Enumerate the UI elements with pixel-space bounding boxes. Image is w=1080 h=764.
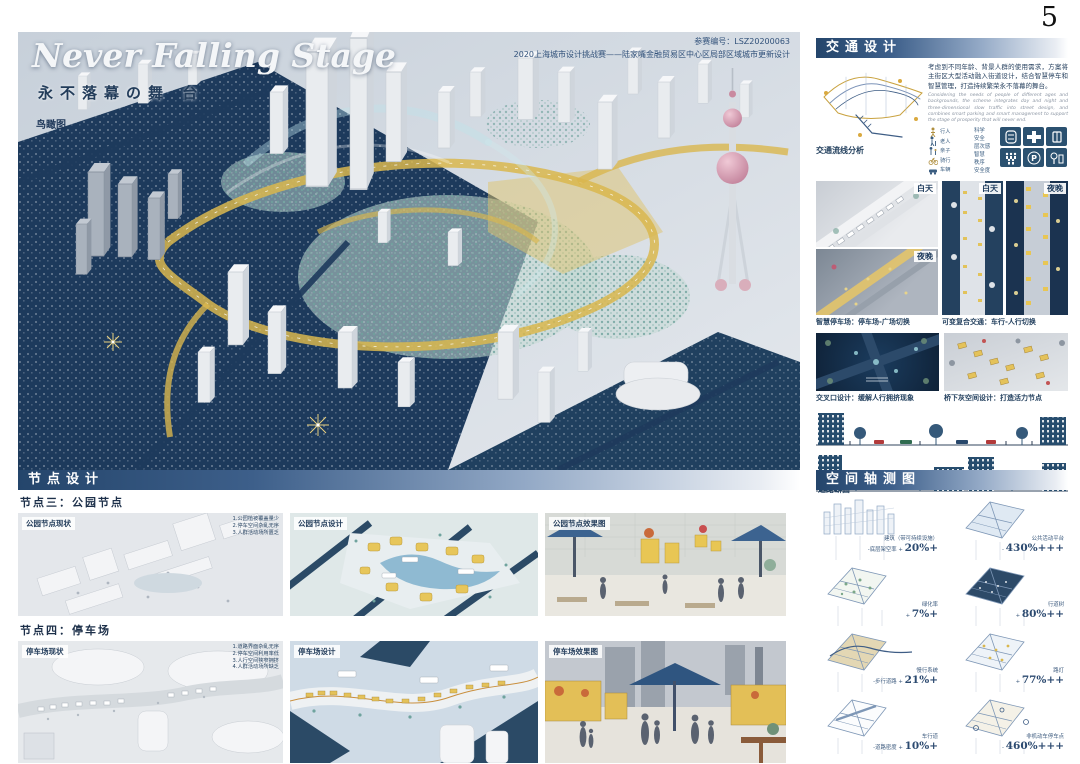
legend-quality: 层次感 (974, 143, 1000, 151)
axon-layer-lamps: 路灯+ 77%++ (942, 626, 1068, 692)
axon-label: 路灯 (1016, 666, 1064, 674)
legend-user-label: 行人 (940, 128, 950, 135)
flow-people-dots (824, 79, 918, 137)
elder-icon (928, 136, 938, 146)
legend-user-label: 亲子 (940, 147, 950, 154)
day-tag: 白天 (914, 183, 936, 194)
parkinglot-design-panel: 停车场设计 (290, 641, 538, 763)
legend-quality: 科学 (974, 127, 1000, 135)
axon-value: 77%++ (1022, 674, 1064, 686)
pedestrian-icon (928, 127, 938, 137)
car-icon (928, 165, 938, 175)
axon-metric: - (1002, 745, 1004, 751)
node4-title: 节点四：停车场 (20, 622, 800, 638)
axon-metric: -道路密度 + (873, 745, 903, 751)
axon-layer-roadway: 车行道-道路密度 + 10%+ (816, 692, 942, 758)
road-section-1 (816, 409, 1068, 451)
underbridge-photo (944, 333, 1068, 391)
parkinglot-status-panel: 停车场现状 1.道路界面杂乱无序 2.停车空间利用率低 3.人行空间狭窄拥挤 4… (18, 641, 283, 763)
park-status-panel: 公园节点现状 1.公园植被覆盖量少 2.停车空间杂乱无序 3.人群活动场所匮乏 (18, 513, 283, 616)
birdseye-render: Never Falling Stage 永不落幕の舞 台 鸟瞰图 参赛编号：LS… (18, 32, 800, 470)
axon-label: 绿化率 (906, 600, 938, 608)
flex-traffic-photos: 白天 夜晚 可变复合交通：车行-人行切换 (942, 181, 1068, 327)
axon-value: 21%+ (905, 674, 938, 686)
legend-quality: 智慧 (974, 151, 1000, 159)
axon-value: 80%++ (1022, 608, 1064, 620)
panel-label: 停车场效果图 (549, 645, 602, 658)
crossing-photo (816, 333, 939, 391)
axon-layer-trees: 行道树+ 80%++ (942, 560, 1068, 626)
family-icon (928, 146, 938, 156)
traffic-section-header: 交通设计 (816, 38, 1068, 58)
parking-pictogram: P (1023, 148, 1044, 167)
smart-parking-photos: 白天 夜晚 智慧停车场：停车场-广场切换 (816, 181, 938, 327)
axon-label: 建筑（带可持续设施） (868, 534, 938, 542)
flex-traffic-caption: 可变复合交通：车行-人行切换 (942, 317, 1068, 327)
panel-label: 公园节点设计 (294, 517, 347, 530)
curved-landmark (616, 362, 700, 410)
street-night-photo: 夜晚 (1006, 181, 1068, 315)
traffic-flow-diagram (816, 63, 926, 143)
crowd-pictogram (1000, 148, 1021, 167)
crossroad-pictogram (1023, 127, 1044, 146)
competition-name: 2020上海城市设计挑战赛——陆家嘴金融贸易区中心区局部区域城市更新设计 (360, 49, 790, 62)
axon-value: 460%+++ (1006, 740, 1064, 752)
gateway-pictogram (1046, 127, 1067, 146)
vehicles (874, 440, 996, 444)
legend-quality: 秩序 (974, 159, 1000, 167)
birdseye-label: 鸟瞰图 (36, 116, 66, 131)
axon-label: 行道树 (1016, 600, 1064, 608)
bicycle-icon (928, 155, 938, 165)
panel-note: 1.公园植被覆盖量少 2.停车空间杂乱无序 3.人群活动场所匮乏 (233, 516, 279, 536)
day-tag: 白天 (979, 183, 1001, 194)
panel-label: 停车场设计 (294, 645, 340, 658)
axon-metric: -底层架空率 + (868, 547, 903, 553)
traffic-intro-en: Considering the needs of people of diffe… (928, 93, 1068, 124)
night-tag: 夜晚 (914, 251, 936, 262)
axon-value: 20%+ (905, 542, 938, 554)
crossing-caption: 交叉口设计：缓解人行拥挤现象 (816, 393, 939, 403)
parkinglot-render-panel: 停车场效果图 (545, 641, 786, 763)
poster-title: Never Falling Stage (32, 36, 396, 75)
street-day-photo: 白天 (942, 181, 1003, 315)
panel-note: 1.道路界面杂乱无序 2.停车空间利用率低 3.人行空间狭窄拥挤 4.人群活动场… (233, 644, 279, 671)
smart-parking-caption: 智慧停车场：停车场-广场切换 (816, 317, 938, 327)
axon-value: 7%+ (912, 608, 938, 620)
competition-meta: 参赛编号：LSZ20200063 2020上海城市设计挑战赛——陆家嘴金融贸易区… (360, 36, 790, 62)
axon-section-header: 空间轴测图 (816, 470, 1068, 490)
axon-metric: + (906, 613, 911, 619)
park-design-panel: 公园节点设计 (290, 513, 538, 616)
page-number: 5 (1041, 2, 1058, 33)
node-design-section: 节点设计 节点三：公园节点 公园节点现状 1.公园植被覆盖量少 2.停车空间杂乱… (18, 470, 800, 763)
axon-value: 10%+ (905, 740, 938, 752)
node-section-header: 节点设计 (18, 470, 800, 490)
axon-label: 公共活动平台 (1002, 534, 1064, 542)
axon-metric: + (1016, 679, 1021, 685)
axon-layer-buildings: 建筑（带可持续设施）-底层架空率 + 20%+ (816, 494, 942, 560)
axon-layer-slow-traffic: 慢行系统-步行道路 + 21%+ (816, 626, 942, 692)
flow-analysis-caption: 交通流线分析 (816, 145, 926, 156)
legend-user-label: 车辆 (940, 166, 950, 173)
axon-label: 非机动车停车点 (1002, 732, 1064, 740)
axon-value: 430%+++ (1006, 542, 1064, 554)
traffic-legend: 行人 老人 亲子 骑行 车辆 科学 安全 层次感 智慧 秩序 安全度 (928, 127, 1068, 175)
axon-metric: - (1002, 547, 1004, 553)
legend-user-label: 骑行 (940, 157, 950, 164)
legend-quality: 安全 (974, 135, 1000, 143)
underbridge-photo-block: 桥下灰空间设计：打造活力节点 (944, 333, 1068, 403)
night-tag: 夜晚 (1044, 183, 1066, 194)
axon-layer-bike-parking: 非机动车停车点- 460%+++ (942, 692, 1068, 758)
axon-layer-greenery: 绿化率+ 7%+ (816, 560, 942, 626)
crossing-photo-block: 交叉口设计：缓解人行拥挤现象 (816, 333, 939, 403)
axon-metric: -步行道路 + (873, 679, 903, 685)
axon-label: 车行道 (873, 732, 938, 740)
traffic-intro-cn: 考虑到不同年龄、背景人群的使用需求，方案将主街区大型活动融入街道设计，结合智慧停… (928, 63, 1068, 91)
legend-user-label: 老人 (940, 138, 950, 145)
axonometric-section: 空间轴测图 建筑（带可持续设施）-底层架空率 + 20%+ 公共活动平台- 43… (816, 470, 1068, 758)
poster-subtitle: 永不落幕の舞 台 (38, 82, 204, 103)
park-render-panel: 公园节点效果图 (545, 513, 786, 616)
panel-label: 公园节点现状 (22, 517, 75, 530)
panel-label: 公园节点效果图 (549, 517, 610, 530)
axon-layer-platform: 公共活动平台- 430%+++ (942, 494, 1068, 560)
node3-title: 节点三：公园节点 (20, 494, 800, 510)
svg-text:P: P (1031, 154, 1037, 163)
panel-label: 停车场现状 (22, 645, 68, 658)
axon-metric: + (1016, 613, 1021, 619)
parking-day-photo: 白天 (816, 181, 938, 247)
underbridge-caption: 桥下灰空间设计：打造活力节点 (944, 393, 1068, 403)
meter-pictogram (1046, 148, 1067, 167)
parking-night-photo: 夜晚 (816, 249, 938, 315)
traffic-design-section: 交通设计 交通流线分析 考虑到不同年龄、背景人群的使用需求，方 (816, 38, 1068, 497)
axon-label: 慢行系统 (873, 666, 938, 674)
entry-number: 参赛编号：LSZ20200063 (360, 36, 790, 49)
bus-pictogram (1000, 127, 1021, 146)
legend-quality: 安全度 (974, 167, 1000, 175)
